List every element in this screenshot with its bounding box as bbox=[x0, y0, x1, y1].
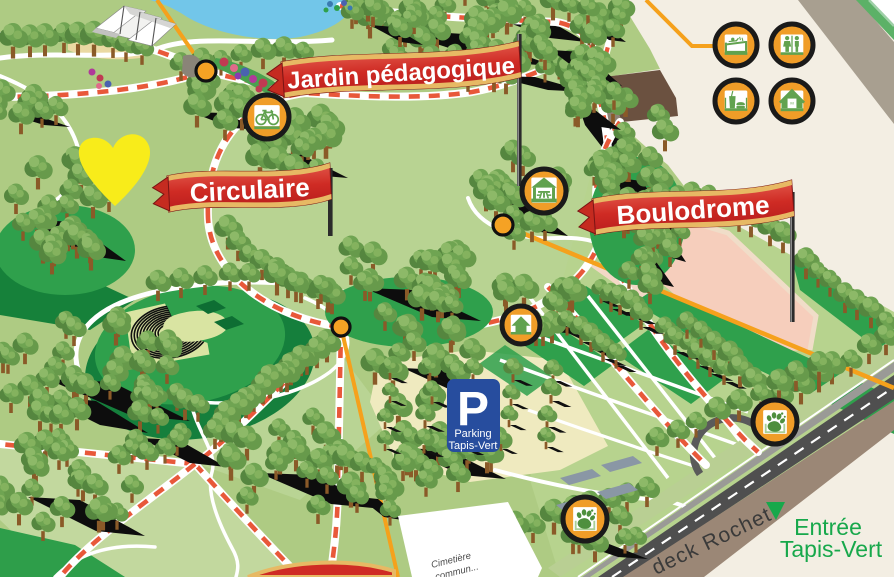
svg-text:Tapis-Vert: Tapis-Vert bbox=[449, 440, 498, 452]
svg-text:Tapis-Vert: Tapis-Vert bbox=[780, 536, 883, 562]
svg-text:Parking: Parking bbox=[454, 428, 491, 440]
svg-text:Circulaire: Circulaire bbox=[189, 172, 310, 208]
